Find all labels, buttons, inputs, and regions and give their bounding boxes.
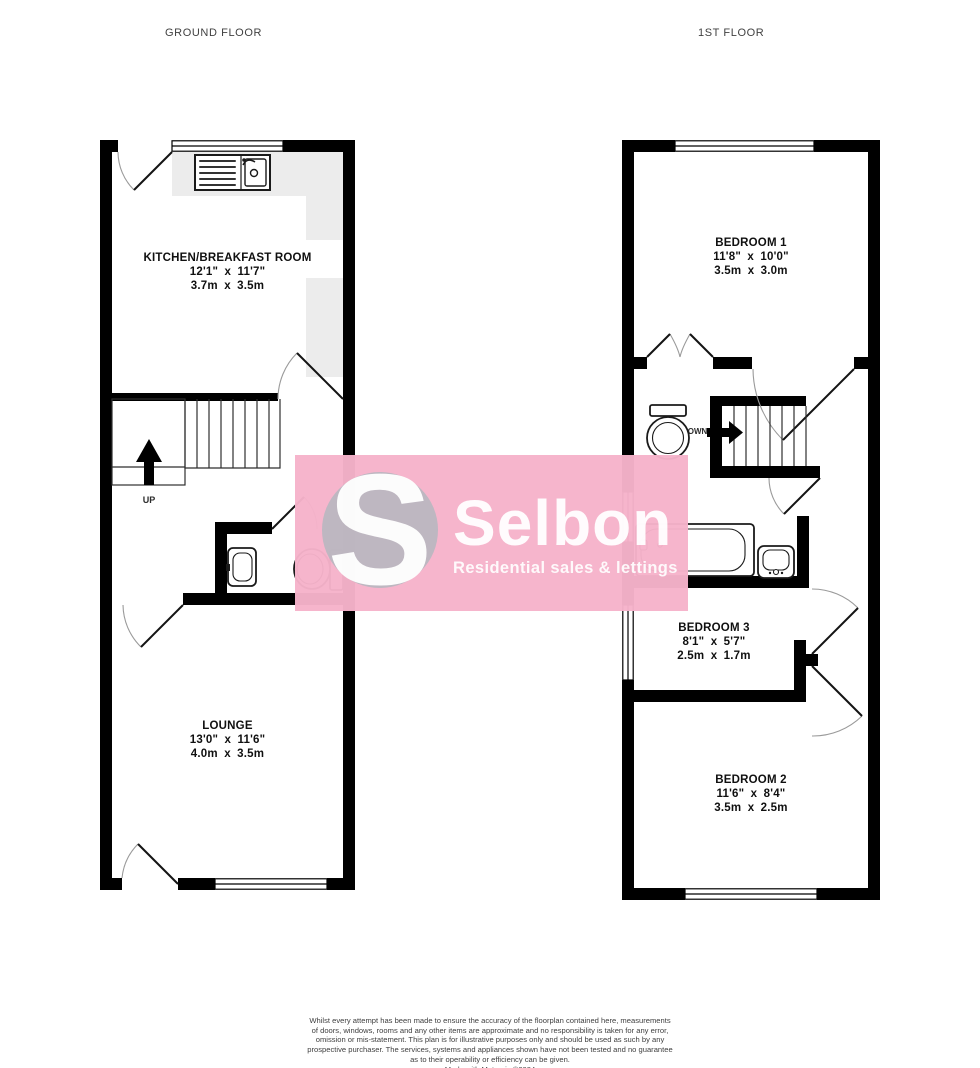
disclaimer-line: of doors, windows, rooms and any other i… — [0, 1026, 980, 1036]
disclaimer-line: prospective purchaser. The services, sys… — [0, 1045, 980, 1055]
selbon-logo-initial: S — [322, 472, 438, 588]
bathroom-basin-icon — [758, 546, 794, 578]
disclaimer-line: Made with Metropix ©2024 — [0, 1065, 980, 1068]
staircase-down — [734, 406, 806, 466]
up-arrow-icon — [136, 439, 162, 485]
disclaimer-line: Whilst every attempt has been made to en… — [0, 1016, 980, 1026]
bathroom-toilet-icon — [647, 405, 689, 459]
kitchen-sink-icon — [195, 155, 270, 190]
selbon-tagline: Residential sales & lettings — [453, 559, 678, 578]
selbon-brand-name: Selbon — [453, 491, 672, 555]
disclaimer-line: as to their operability or efficiency ca… — [0, 1055, 980, 1065]
selbon-watermark: S Selbon Residential sales & lettings — [295, 455, 688, 611]
ground-floor-title: GROUND FLOOR — [165, 27, 262, 39]
first-floor-title: 1ST FLOOR — [698, 27, 764, 39]
disclaimer: Whilst every attempt has been made to en… — [0, 1016, 980, 1068]
staircase-up — [112, 399, 280, 485]
floorplan-canvas: GROUND FLOOR 1ST FLOOR KITCHEN/BREAKFAST… — [0, 0, 980, 1068]
disclaimer-line: omission or mis-statement. This plan is … — [0, 1035, 980, 1045]
wc-basin-icon — [226, 548, 256, 586]
